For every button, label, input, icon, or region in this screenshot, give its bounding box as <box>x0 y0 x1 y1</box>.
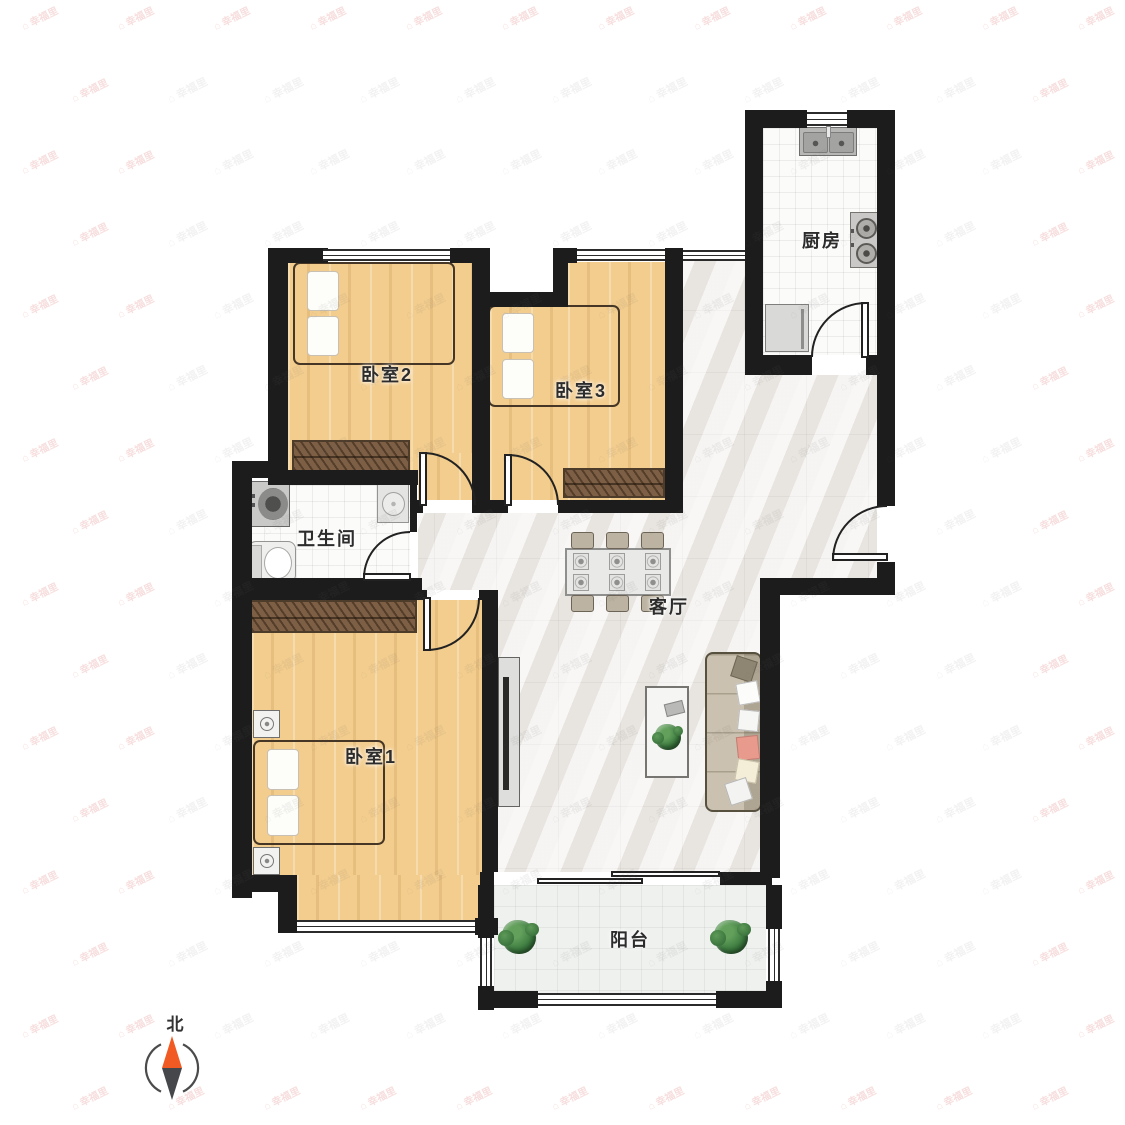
bathroom-label: 卫生间 <box>297 525 357 551</box>
kitchen-label: 厨房 <box>802 227 842 253</box>
compass-north-arrow <box>162 1036 182 1068</box>
door-layer <box>0 0 1125 1125</box>
floor-plan-canvas: 厨房 卧室2 卧室3 卫生间 客厅 卧室1 阳台 北 ⌂ 幸福里⌂ 幸福里⌂ 幸… <box>0 0 1125 1125</box>
bedroom3-door <box>505 455 558 505</box>
bedroom1-door <box>424 598 479 650</box>
compass-south-arrow <box>162 1068 182 1100</box>
compass-north-label: 北 <box>167 1010 184 1035</box>
bedroom2-door <box>420 453 475 505</box>
kitchen-door <box>812 303 868 357</box>
bedroom1-label: 卧室1 <box>345 743 397 769</box>
bedroom3-label: 卧室3 <box>555 377 607 403</box>
balcony-label: 阳台 <box>610 926 650 952</box>
bedroom2-label: 卧室2 <box>361 361 413 387</box>
bathroom-door <box>364 532 410 580</box>
entry-door <box>833 506 887 560</box>
compass: 北 <box>130 1000 220 1120</box>
living-label: 客厅 <box>649 593 689 619</box>
